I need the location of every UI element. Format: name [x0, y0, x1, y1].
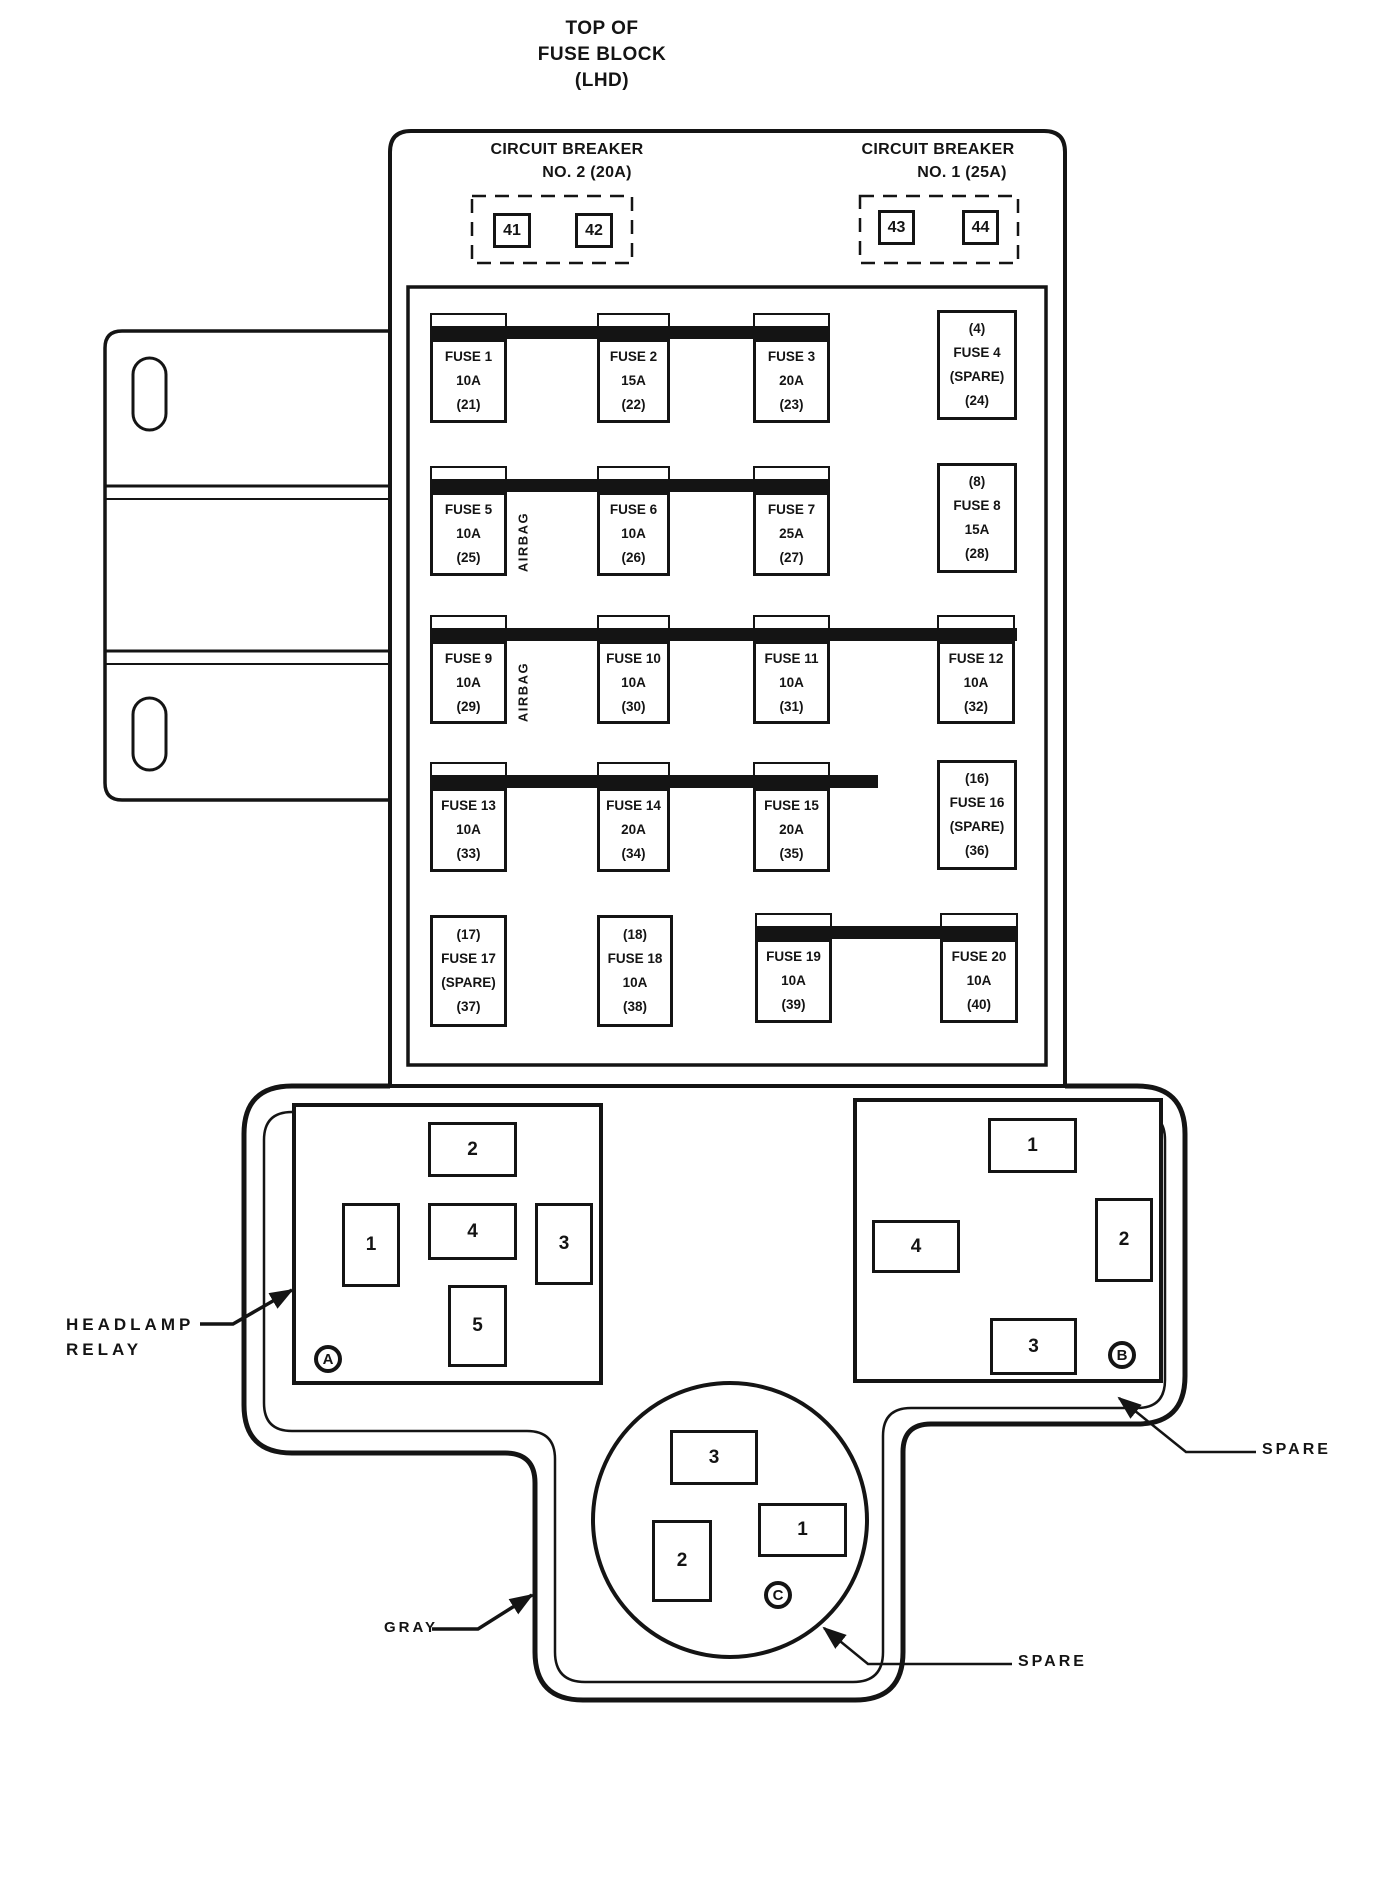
fuse-line: (35): [779, 842, 803, 866]
fuse-line: 10A: [456, 369, 481, 393]
bracket-slot: [133, 698, 166, 770]
fuse-tab: [597, 313, 670, 327]
fuse-line: 10A: [967, 969, 992, 993]
airbag-label: AIRBAG: [516, 512, 531, 572]
fuse-12: FUSE 12 10A (32): [937, 641, 1015, 724]
fuse-line: FUSE 16: [950, 791, 1005, 815]
bus-bar-row2: [430, 479, 830, 492]
fuse-line: FUSE 19: [766, 945, 821, 969]
fuse-tab: [937, 615, 1015, 629]
fuse-block-diagram: TOP OF FUSE BLOCK (LHD) CIRCUIT BREAKER …: [0, 0, 1392, 1904]
fuse-line: FUSE 4: [953, 341, 1000, 365]
fuse-line: (16): [965, 767, 989, 791]
mounting-bracket: [105, 331, 390, 800]
spare-c-arrow: [824, 1628, 1012, 1664]
fuse-tab: [753, 313, 830, 327]
cb1-terminal-43: 43: [878, 210, 915, 245]
cb2-name: CIRCUIT BREAKER: [491, 138, 644, 161]
fuse-tab: [753, 466, 830, 480]
fuse-line: 10A: [781, 969, 806, 993]
fuse-line: FUSE 10: [606, 647, 661, 671]
fuse-line: 10A: [456, 671, 481, 695]
fuse-line: FUSE 12: [949, 647, 1004, 671]
fuse-line: FUSE 6: [610, 498, 657, 522]
fuse-7: FUSE 7 25A (27): [753, 492, 830, 576]
fuse-line: (40): [967, 993, 991, 1017]
fuse-18: (18) FUSE 18 10A (38): [597, 915, 673, 1027]
fuse-line: FUSE 15: [764, 794, 819, 818]
fuse-11: FUSE 11 10A (31): [753, 641, 830, 724]
circuit-breaker-2-label: CIRCUIT BREAKER NO. 2 (20A): [491, 138, 644, 184]
fuse-13: FUSE 13 10A (33): [430, 788, 507, 872]
fuse-line: (22): [621, 393, 645, 417]
diagram-linework: [0, 0, 1392, 1904]
fuse-16: (16) FUSE 16 (SPARE) (36): [937, 760, 1017, 870]
fuse-tab: [597, 466, 670, 480]
fuse-tab: [430, 466, 507, 480]
fuse-19: FUSE 19 10A (39): [755, 939, 832, 1023]
fuse-line: (28): [965, 542, 989, 566]
fuse-5: FUSE 5 10A (25): [430, 492, 507, 576]
fuse-line: 20A: [621, 818, 646, 842]
fuse-line: (37): [456, 995, 480, 1019]
connector-a-pin-4: 4: [428, 1203, 517, 1260]
spare-label-connector-c: SPARE: [1018, 1653, 1087, 1671]
fuse-line: FUSE 3: [768, 345, 815, 369]
fuse-line: (30): [621, 695, 645, 719]
fuse-15: FUSE 15 20A (35): [753, 788, 830, 872]
bus-bar-row1: [430, 326, 830, 339]
bracket-slot: [133, 358, 166, 430]
connector-c-pin-3: 3: [670, 1430, 758, 1485]
fuse-1: FUSE 1 10A (21): [430, 339, 507, 423]
fuse-line: (38): [623, 995, 647, 1019]
connector-b-pin-3: 3: [990, 1318, 1077, 1375]
fuse-tab: [753, 615, 830, 629]
title-line: FUSE BLOCK: [538, 42, 667, 68]
fuse-line: FUSE 1: [445, 345, 492, 369]
fuse-line: FUSE 20: [952, 945, 1007, 969]
fuse-line: (26): [621, 546, 645, 570]
fuse-3: FUSE 3 20A (23): [753, 339, 830, 423]
fuse-20: FUSE 20 10A (40): [940, 939, 1018, 1023]
fuse-9: FUSE 9 10A (29): [430, 641, 507, 724]
fuse-line: FUSE 7: [768, 498, 815, 522]
fuse-line: 25A: [779, 522, 804, 546]
gray-label: GRAY: [384, 1619, 438, 1636]
connector-b-pin-1: 1: [988, 1118, 1077, 1173]
fuse-line: (33): [456, 842, 480, 866]
connector-c-letter: C: [764, 1581, 792, 1609]
fuse-line: (SPARE): [950, 365, 1005, 389]
headlamp-relay-label-line1: HEADLAMP: [66, 1312, 194, 1337]
connector-b-pin-4: 4: [872, 1220, 960, 1273]
fuse-line: (34): [621, 842, 645, 866]
fuse-line: 10A: [621, 522, 646, 546]
connector-a-pin-5: 5: [448, 1285, 507, 1367]
fuse-line: FUSE 17: [441, 947, 496, 971]
connector-c-pin-1: 1: [758, 1503, 847, 1557]
fuse-tab: [753, 762, 830, 776]
connector-a-pin-3: 3: [535, 1203, 593, 1285]
connector-a-pin-2: 2: [428, 1122, 517, 1177]
fuse-line: 20A: [779, 818, 804, 842]
fuse-line: (31): [779, 695, 803, 719]
fuse-line: 10A: [621, 671, 646, 695]
cb1-rating: NO. 1 (25A): [910, 161, 1015, 184]
fuse-line: (27): [779, 546, 803, 570]
mounting-bracket-outline: [105, 331, 390, 800]
fuse-line: FUSE 13: [441, 794, 496, 818]
fuse-tab: [597, 762, 670, 776]
fuse-line: 20A: [779, 369, 804, 393]
connector-a-pin-1: 1: [342, 1203, 400, 1287]
fuse-line: (24): [965, 389, 989, 413]
gray-arrow: [432, 1595, 532, 1629]
fuse-line: (36): [965, 839, 989, 863]
fuse-line: FUSE 2: [610, 345, 657, 369]
fuse-line: FUSE 11: [764, 647, 818, 671]
connector-b-letter: B: [1108, 1341, 1136, 1369]
fuse-line: (32): [964, 695, 988, 719]
fuse-tab: [940, 913, 1018, 927]
spare-label-connector-b: SPARE: [1262, 1441, 1331, 1459]
title-line: (LHD): [538, 68, 667, 94]
connector-b-pin-2: 2: [1095, 1198, 1153, 1282]
fuse-line: (18): [623, 923, 647, 947]
fuse-line: (39): [781, 993, 805, 1017]
cb1-terminal-44: 44: [962, 210, 999, 245]
fuse-line: (29): [456, 695, 480, 719]
fuse-line: (8): [969, 470, 986, 494]
fuse-tab: [597, 615, 670, 629]
fuse-4: (4) FUSE 4 (SPARE) (24): [937, 310, 1017, 420]
bus-bar-row5: [755, 926, 1018, 939]
fuse-line: FUSE 9: [445, 647, 492, 671]
fuse-line: (17): [456, 923, 480, 947]
cb2-rating: NO. 2 (20A): [531, 161, 644, 184]
fuse-line: (SPARE): [441, 971, 496, 995]
fuse-tab: [430, 615, 507, 629]
circuit-breaker-1-label: CIRCUIT BREAKER NO. 1 (25A): [862, 138, 1015, 184]
fuse-line: 10A: [964, 671, 989, 695]
fuse-line: 15A: [965, 518, 990, 542]
headlamp-relay-label-line2: RELAY: [66, 1337, 194, 1362]
fuse-line: 10A: [779, 671, 804, 695]
connector-c-pin-2: 2: [652, 1520, 712, 1602]
diagram-title: TOP OF FUSE BLOCK (LHD): [538, 16, 667, 94]
fuse-line: FUSE 14: [606, 794, 661, 818]
fuse-line: (23): [779, 393, 803, 417]
fuse-line: 10A: [456, 522, 481, 546]
cb1-name: CIRCUIT BREAKER: [862, 138, 1015, 161]
fuse-line: (21): [456, 393, 480, 417]
fuse-17: (17) FUSE 17 (SPARE) (37): [430, 915, 507, 1027]
fuse-6: FUSE 6 10A (26): [597, 492, 670, 576]
fuse-line: FUSE 8: [953, 494, 1000, 518]
airbag-label: AIRBAG: [516, 662, 531, 722]
fuse-14: FUSE 14 20A (34): [597, 788, 670, 872]
cb2-terminal-42: 42: [575, 213, 613, 248]
fuse-line: 10A: [456, 818, 481, 842]
fuse-tab: [430, 762, 507, 776]
fuse-line: FUSE 5: [445, 498, 492, 522]
fuse-2: FUSE 2 15A (22): [597, 339, 670, 423]
fuse-tab: [755, 913, 832, 927]
fuse-line: FUSE 18: [608, 947, 663, 971]
title-line: TOP OF: [538, 16, 667, 42]
fuse-line: 15A: [621, 369, 646, 393]
connector-a-letter: A: [314, 1345, 342, 1373]
fuse-line: (4): [969, 317, 986, 341]
cb2-terminal-41: 41: [493, 213, 531, 248]
bus-bar-row4: [430, 775, 878, 788]
fuse-line: 10A: [623, 971, 648, 995]
headlamp-relay-label: HEADLAMP RELAY: [66, 1312, 194, 1362]
bus-bar-row3: [430, 628, 1017, 641]
fuse-tab: [430, 313, 507, 327]
fuse-8: (8) FUSE 8 15A (28): [937, 463, 1017, 573]
fuse-line: (SPARE): [950, 815, 1005, 839]
fuse-line: (25): [456, 546, 480, 570]
fuse-10: FUSE 10 10A (30): [597, 641, 670, 724]
